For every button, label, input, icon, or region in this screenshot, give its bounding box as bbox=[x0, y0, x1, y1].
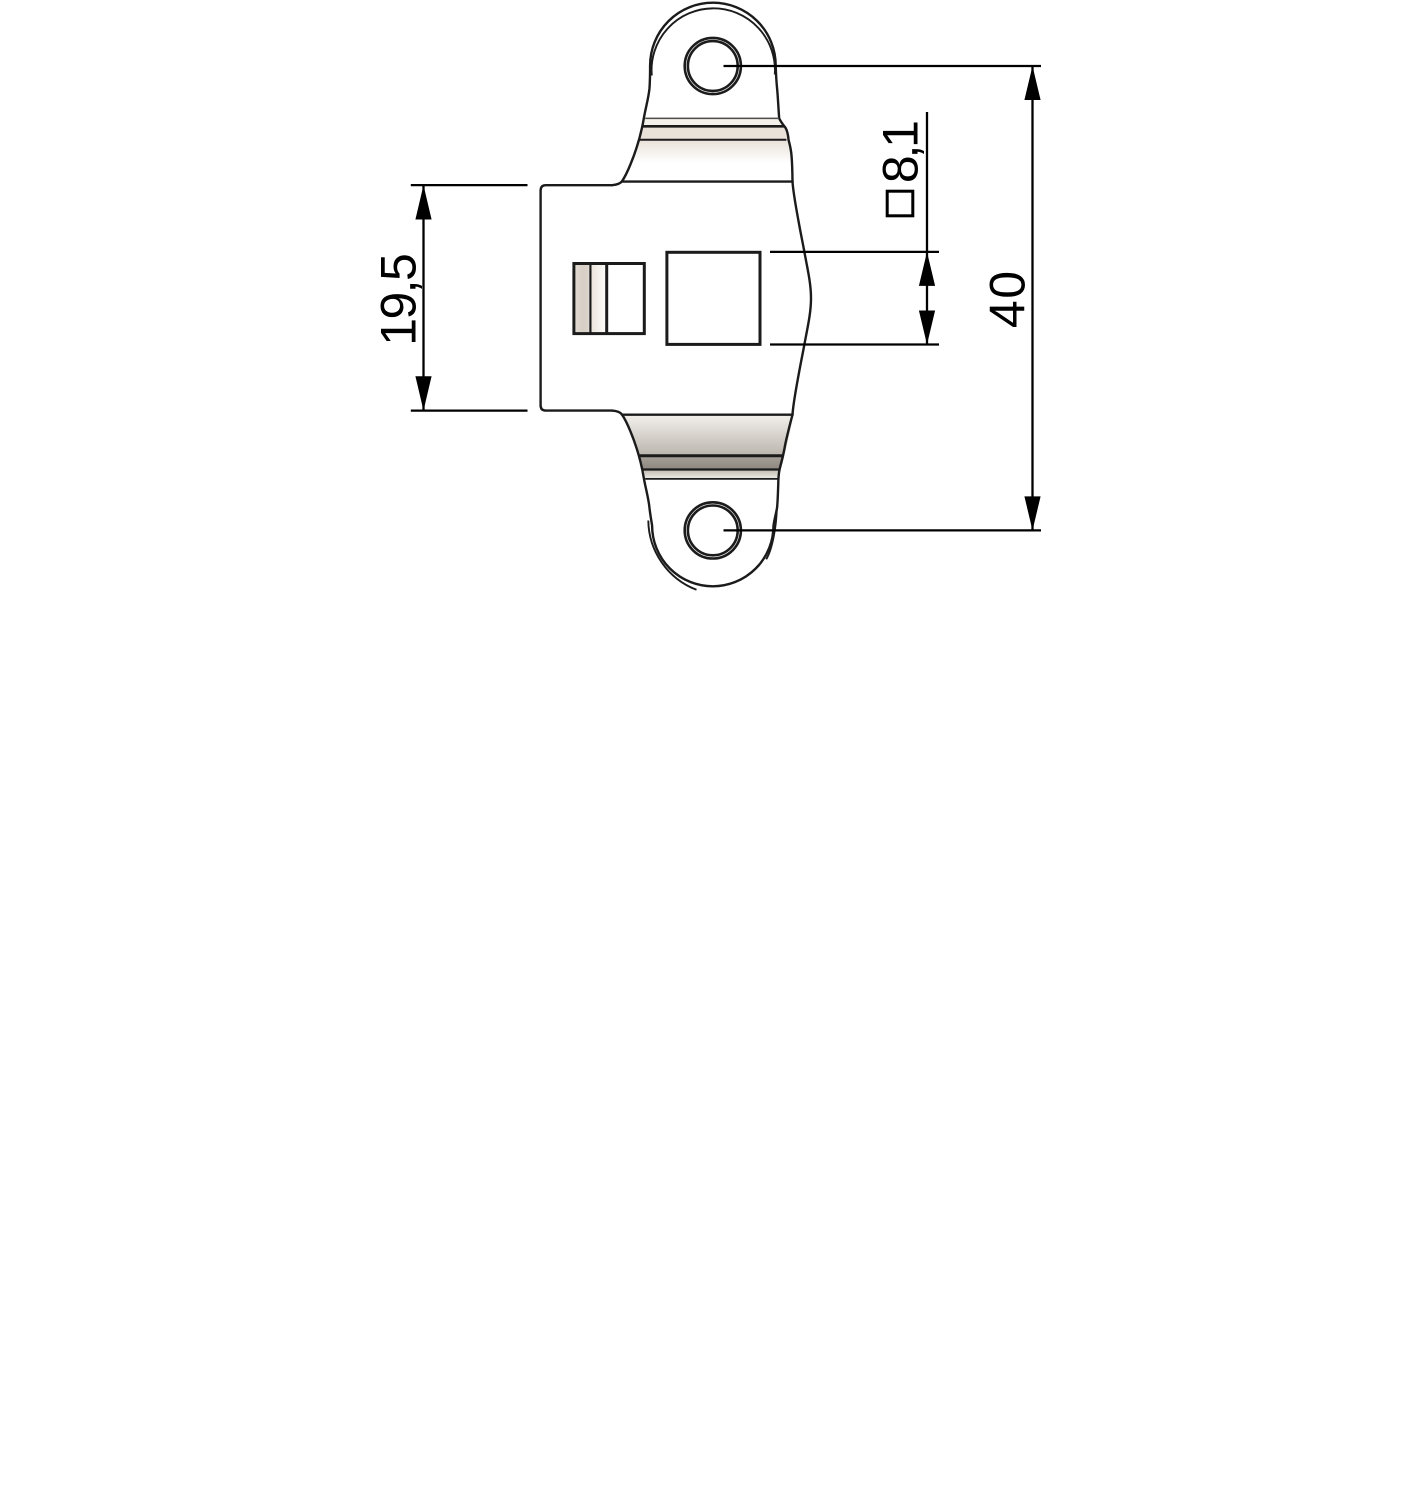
svg-text:19,5: 19,5 bbox=[371, 255, 427, 346]
svg-text:8,1: 8,1 bbox=[873, 122, 929, 183]
svg-text:40: 40 bbox=[979, 269, 1035, 328]
